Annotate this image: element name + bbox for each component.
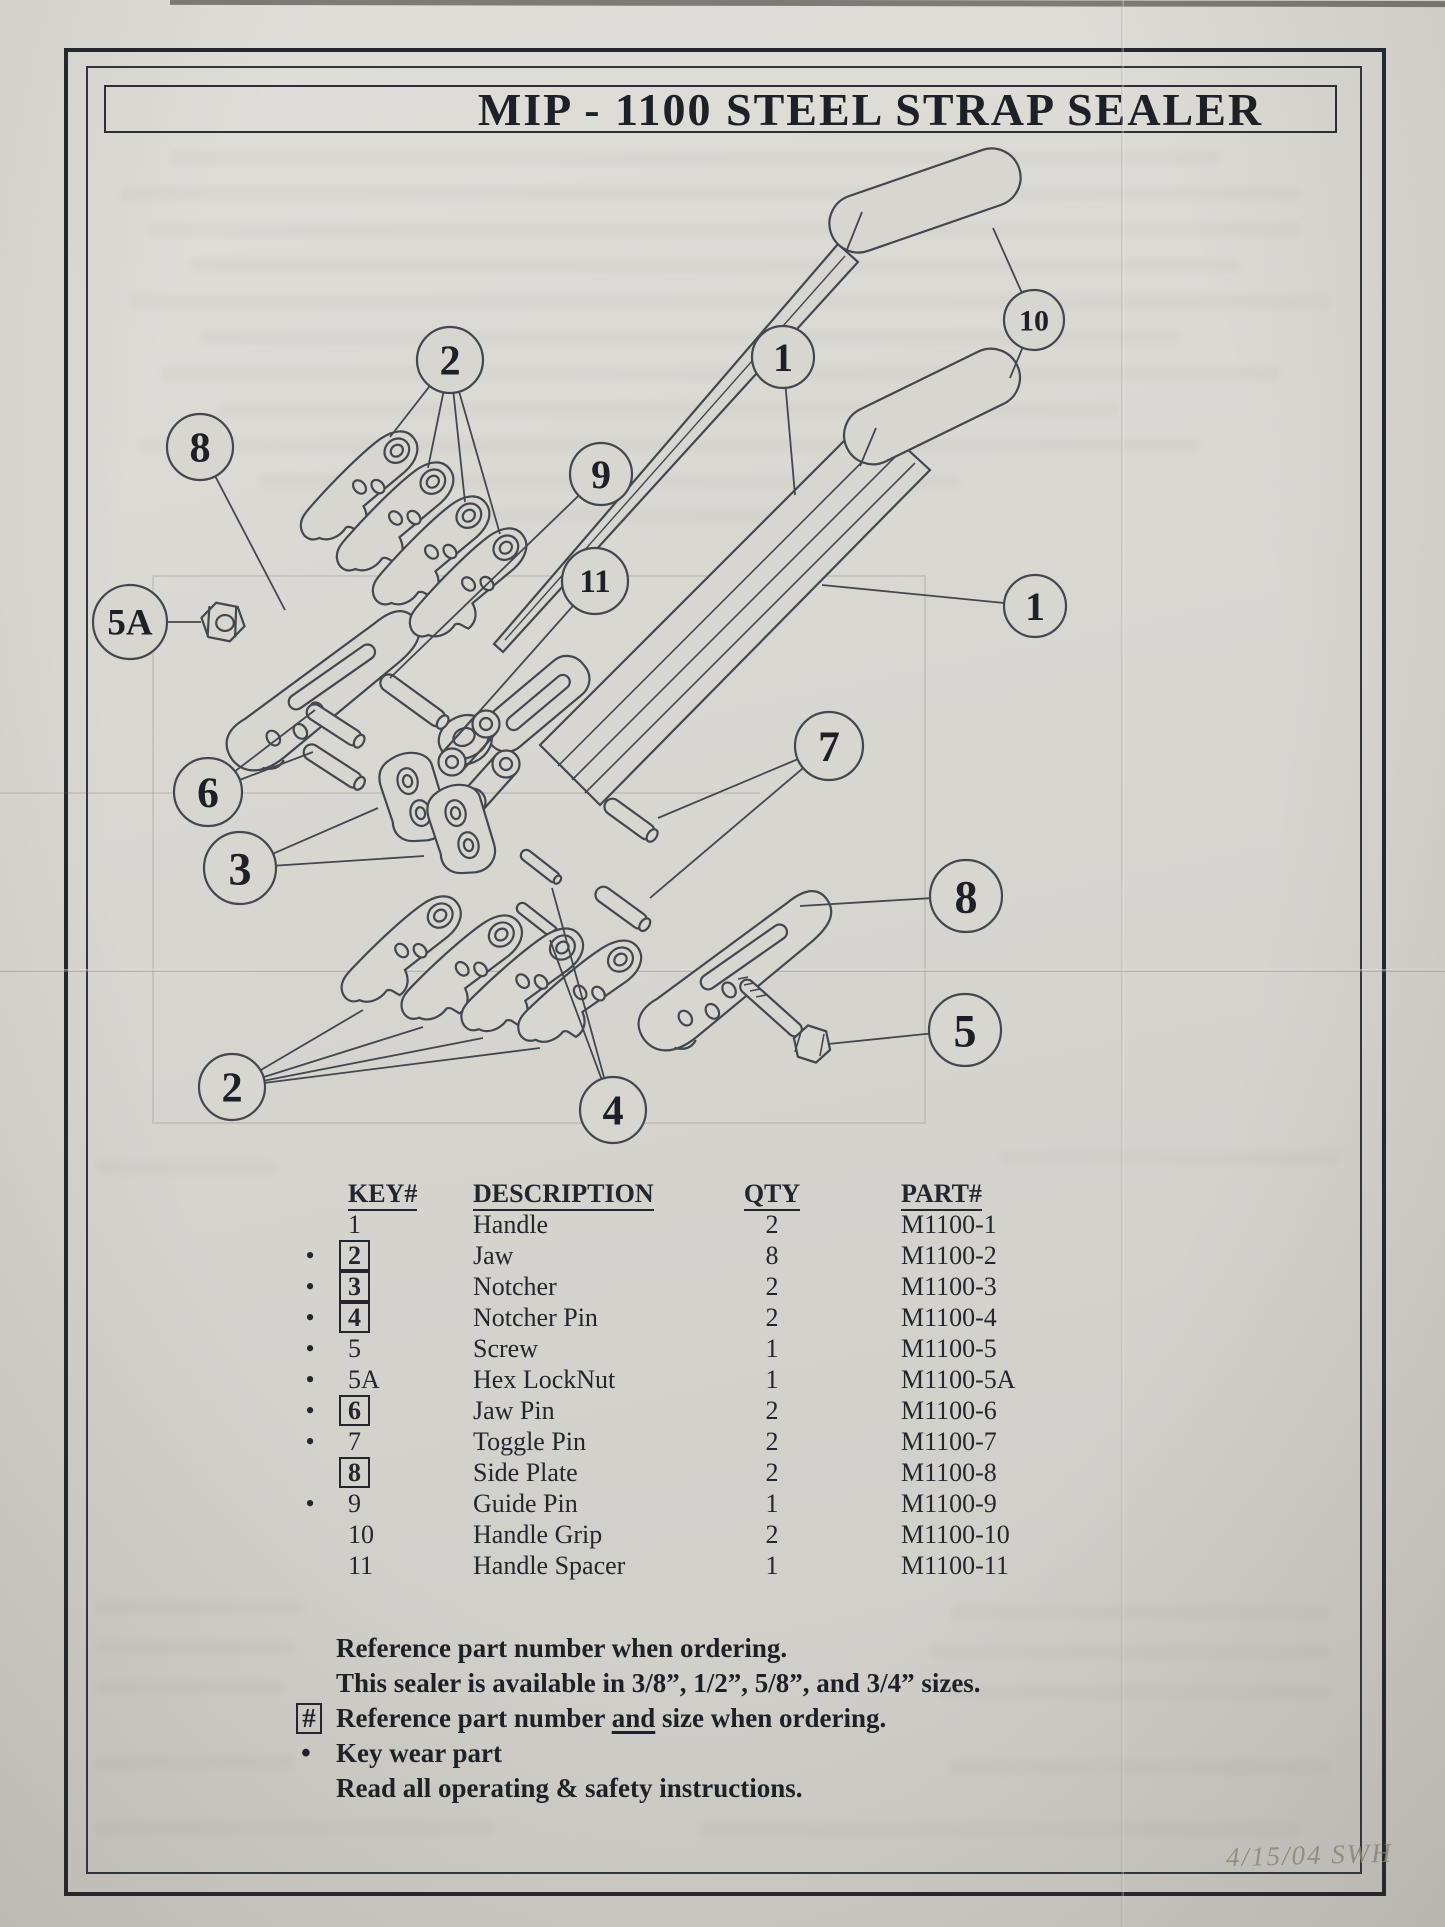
row-wear-bullet: • [296, 1375, 324, 1385]
row-qty: 1 [725, 1334, 819, 1364]
guide-pin [377, 671, 452, 732]
table-row: •3Notcher2M1100-3 [296, 1271, 1079, 1302]
callout-number: 4 [602, 1088, 623, 1135]
row-key: 1 [324, 1210, 451, 1240]
callout-number: 2 [221, 1065, 242, 1112]
row-description: Handle [451, 1210, 725, 1240]
leader-line [993, 228, 1022, 293]
table-row: •5Screw1M1100-5 [296, 1333, 1079, 1364]
table-row: 11Handle Spacer1M1100-11 [296, 1550, 1079, 1581]
callout-number: 3 [228, 844, 251, 895]
row-description: Screw [451, 1334, 725, 1364]
callout-number: 1 [773, 336, 793, 380]
table-row: 1Handle2M1100-1 [296, 1209, 1079, 1240]
table-row: •5AHex LockNut1M1100-5A [296, 1364, 1079, 1395]
screw-shaft [737, 977, 804, 1039]
row-qty: 1 [725, 1551, 819, 1581]
note-line: Read all operating & safety instructions… [296, 1771, 981, 1806]
row-key: 5A [324, 1365, 451, 1395]
row-wear-bullet: • [296, 1499, 324, 1509]
table-header: KEY# DESCRIPTION QTY PART# [296, 1179, 1079, 1209]
row-description: Handle Grip [451, 1520, 725, 1550]
ordering-notes: Reference part number when ordering.This… [296, 1631, 981, 1806]
row-key: 5 [324, 1334, 451, 1364]
note-line: •Key wear part [296, 1736, 981, 1771]
row-qty: 2 [725, 1210, 819, 1240]
leader-line [786, 388, 795, 495]
note-text: Key wear part [336, 1738, 502, 1769]
note-line: This sealer is available in 3/8”, 1/2”, … [296, 1666, 981, 1701]
row-wear-bullet: • [296, 1313, 324, 1323]
callout-number: 2 [439, 338, 460, 385]
row-qty: 2 [725, 1272, 819, 1302]
row-qty: 1 [725, 1489, 819, 1519]
row-wear-bullet: • [296, 1251, 324, 1261]
handwritten-date: 4/15/04 SWH [1226, 1838, 1394, 1874]
note-line: Reference part number when ordering. [296, 1631, 981, 1666]
row-part-number: M1100-3 [819, 1272, 1079, 1302]
scanned-parts-sheet: MIP - 1100 STEEL STRAP SEALER [0, 0, 1445, 1927]
handle-grip-upper [822, 141, 1029, 261]
leader-line [428, 392, 443, 468]
row-part-number: M1100-5 [819, 1334, 1079, 1364]
callout-1: 1 [822, 575, 1066, 637]
callout-5A: 5A [93, 585, 201, 659]
row-wear-bullet: • [296, 1344, 324, 1354]
row-description: Notcher Pin [451, 1303, 725, 1333]
col-header-key: KEY# [348, 1179, 417, 1211]
table-row: 8Side Plate2M1100-8 [296, 1457, 1079, 1488]
col-header-qty: QTY [744, 1179, 800, 1211]
callout-number: 6 [197, 769, 219, 817]
table-row: •9Guide Pin1M1100-9 [296, 1488, 1079, 1519]
note-marker: • [296, 1738, 336, 1770]
leader-line [215, 476, 285, 610]
row-description: Toggle Pin [451, 1427, 725, 1457]
row-key: 2 [324, 1240, 451, 1271]
row-wear-bullet: • [296, 1282, 324, 1292]
row-part-number: M1100-8 [819, 1458, 1079, 1488]
table-rows: 1Handle2M1100-1•2Jaw8M1100-2•3Notcher2M1… [296, 1209, 1079, 1581]
callout-number: 8 [189, 425, 210, 472]
row-key: 11 [324, 1551, 451, 1581]
row-wear-bullet: • [296, 1406, 324, 1416]
jaw-pin [301, 741, 368, 792]
row-key: 3 [324, 1271, 451, 1302]
table-row: •6Jaw Pin2M1100-6 [296, 1395, 1079, 1426]
row-qty: 2 [725, 1396, 819, 1426]
row-part-number: M1100-7 [819, 1427, 1079, 1457]
row-qty: 2 [725, 1427, 819, 1457]
toggle-pin [592, 884, 653, 934]
row-key: 10 [324, 1520, 451, 1550]
row-qty: 8 [725, 1241, 819, 1271]
callout-number: 8 [954, 872, 977, 923]
note-text: This sealer is available in 3/8”, 1/2”, … [336, 1668, 981, 1699]
row-part-number: M1100-10 [819, 1520, 1079, 1550]
callout-number: 10 [1019, 305, 1049, 338]
row-qty: 2 [725, 1458, 819, 1488]
row-part-number: M1100-11 [819, 1551, 1079, 1581]
callout-number: 1 [1025, 585, 1045, 629]
callout-1: 1 [752, 326, 814, 495]
callout-number: 5A [107, 603, 153, 644]
col-header-description: DESCRIPTION [473, 1179, 654, 1211]
row-part-number: M1100-5A [819, 1365, 1079, 1395]
row-qty: 2 [725, 1520, 819, 1550]
row-key: 8 [324, 1457, 451, 1488]
row-description: Guide Pin [451, 1489, 725, 1519]
handle-grip-lower [834, 339, 1029, 474]
table-row: •4Notcher Pin2M1100-4 [296, 1302, 1079, 1333]
note-text: Reference part number when ordering. [336, 1633, 787, 1664]
row-part-number: M1100-1 [819, 1210, 1079, 1240]
leader-line [822, 585, 1004, 603]
notcher [423, 780, 499, 880]
row-key: 7 [324, 1427, 451, 1457]
callout-8: 8 [167, 414, 285, 610]
note-marker: # [296, 1703, 336, 1734]
callout-number: 11 [579, 564, 610, 600]
row-description: Side Plate [451, 1458, 725, 1488]
row-description: Handle Spacer [451, 1551, 725, 1581]
row-description: Hex LockNut [451, 1365, 725, 1395]
parts-table: KEY# DESCRIPTION QTY PART# 1Handle2M1100… [296, 1179, 1079, 1581]
leader-line [658, 759, 798, 818]
toggle-pin [601, 796, 660, 845]
row-description: Notcher [451, 1272, 725, 1302]
row-key: 4 [324, 1302, 451, 1333]
callout-5: 5 [828, 994, 1001, 1066]
row-part-number: M1100-2 [819, 1241, 1079, 1271]
callout-number: 5 [953, 1006, 976, 1057]
row-key: 6 [324, 1395, 451, 1426]
note-text: Read all operating & safety instructions… [336, 1773, 802, 1804]
col-header-part: PART# [901, 1179, 982, 1211]
row-part-number: M1100-9 [819, 1489, 1079, 1519]
row-key: 9 [324, 1489, 451, 1519]
note-line: #Reference part number and size when ord… [296, 1701, 981, 1736]
callout-7: 7 [650, 712, 863, 898]
leader-line [276, 856, 424, 866]
leader-line [390, 386, 430, 437]
callout-number: 7 [818, 723, 840, 771]
callout-8: 8 [800, 860, 1002, 932]
row-part-number: M1100-6 [819, 1396, 1079, 1426]
row-description: Jaw [451, 1241, 725, 1271]
table-row: 10Handle Grip2M1100-10 [296, 1519, 1079, 1550]
leader-line [650, 768, 803, 898]
row-wear-bullet: • [296, 1437, 324, 1447]
leader-line [828, 1034, 929, 1044]
notcher-pin [519, 848, 564, 886]
callout-number: 9 [591, 453, 611, 497]
row-description: Jaw Pin [451, 1396, 725, 1426]
table-row: •7Toggle Pin2M1100-7 [296, 1426, 1079, 1457]
note-text: Reference part number and size when orde… [336, 1703, 886, 1734]
table-row: •2Jaw8M1100-2 [296, 1240, 1079, 1271]
row-part-number: M1100-4 [819, 1303, 1079, 1333]
leader-line [273, 808, 378, 854]
leader-line [263, 1027, 423, 1077]
row-qty: 2 [725, 1303, 819, 1333]
callout-3: 3 [204, 808, 424, 904]
row-qty: 1 [725, 1365, 819, 1395]
